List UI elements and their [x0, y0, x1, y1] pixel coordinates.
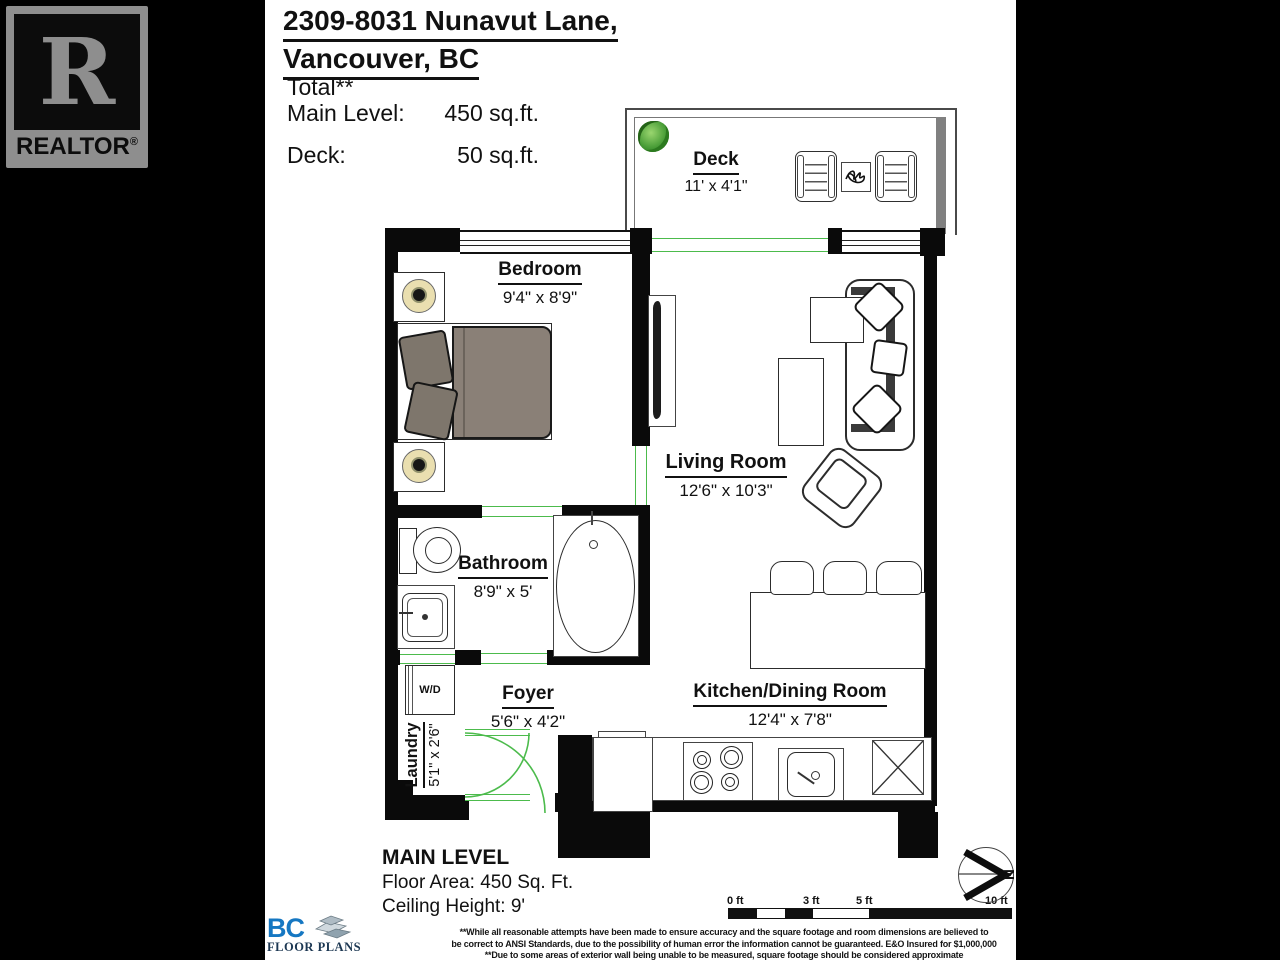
sink-drain: [422, 614, 428, 620]
wall-segment: [828, 228, 842, 254]
wall-segment: [924, 250, 937, 806]
room-name: Laundry: [403, 722, 425, 787]
room-label-living-room: Living Room 12'6" x 10'3": [646, 450, 806, 501]
coffee-table: [778, 358, 824, 446]
tv-screen: [653, 301, 661, 419]
bed-blanket: [452, 326, 552, 439]
sliding-door: [652, 238, 828, 252]
room-name: Kitchen/Dining Room: [693, 680, 886, 707]
room-name: Deck: [693, 148, 738, 175]
level-summary: MAIN LEVEL Floor Area: 450 Sq. Ft. Ceili…: [382, 845, 573, 919]
refrigerator: [593, 737, 653, 812]
throw-pillow: [870, 339, 908, 377]
area-row-value: 50 sq.ft.: [457, 142, 539, 169]
realtor-logo: R REALTOR®: [6, 6, 148, 168]
scale-bar: [728, 908, 1012, 919]
room-name: Foyer: [502, 682, 554, 709]
north-arrow-icon: N: [958, 847, 1016, 907]
faucet: [399, 612, 413, 614]
room-name: Living Room: [665, 450, 786, 478]
level-title: MAIN LEVEL: [382, 845, 573, 871]
floor-area: Floor Area: 450 Sq. Ft.: [382, 871, 573, 895]
armchair: [797, 443, 887, 533]
entry-door-swing: [460, 723, 585, 818]
scale-tick: 3 ft: [803, 895, 820, 907]
floorplan-canvas: 2309-8031 Nunavut Lane, Vancouver, BC To…: [265, 0, 1016, 960]
disclaimer: **While all reasonable attempts have bee…: [433, 927, 1015, 960]
table-lamp: [402, 279, 436, 313]
registered-mark: ®: [130, 136, 138, 148]
wall-segment: [455, 650, 481, 665]
bc-logo-house-icon: [306, 913, 352, 941]
toilet-bowl-inner: [425, 537, 452, 564]
property-address: 2309-8031 Nunavut Lane, Vancouver, BC: [283, 4, 618, 80]
room-dims: 12'6" x 10'3": [646, 480, 806, 501]
bar-stool: [823, 561, 867, 595]
refrigerator-door: [598, 731, 646, 738]
table-plant-scribble: [842, 163, 870, 191]
area-row-label: Main Level:: [287, 100, 405, 127]
north-label: N: [1000, 869, 1016, 880]
table-lamp: [402, 449, 436, 483]
disclaimer-line: **While all reasonable attempts have bee…: [433, 927, 1015, 939]
deck-chair: [875, 151, 917, 202]
deck-chair: [795, 151, 837, 202]
tub-faucet: [591, 511, 593, 525]
disclaimer-line: **Due to some areas of exterior wall bei…: [433, 950, 1015, 960]
stove-burner: [720, 746, 743, 769]
bc-floor-plans-logo: BC FLOOR PLANS: [267, 913, 379, 955]
kitchen-island: [750, 592, 926, 669]
bar-stool: [770, 561, 814, 595]
bc-logo-wordmark: FLOOR PLANS: [267, 940, 379, 955]
realtor-wordmark: REALTOR®: [6, 132, 148, 168]
scale-tick: 5 ft: [856, 895, 873, 907]
realtor-logo-box: R: [14, 14, 140, 130]
appliance-x-box: [872, 740, 924, 795]
total-label: Total**: [287, 74, 353, 101]
bathroom-door-top: [482, 506, 562, 517]
disclaimer-line: be correct to ANSI Standards, due to the…: [433, 939, 1015, 951]
area-row-deck: Deck: 50 sq.ft.: [287, 142, 539, 169]
room-label-deck: Deck 11' x 4'1": [636, 148, 796, 197]
stove-burner: [693, 751, 711, 769]
bathroom-door-bottom: [481, 653, 547, 664]
room-name: Bedroom: [498, 258, 581, 285]
sink-drain: [811, 771, 820, 780]
room-name: Bathroom: [458, 552, 548, 579]
scale-tick: 0 ft: [727, 895, 744, 907]
room-label-bedroom: Bedroom 9'4" x 8'9": [460, 258, 620, 308]
deck-side-table: [841, 162, 871, 192]
wall-segment: [898, 812, 938, 858]
pillow: [398, 329, 455, 391]
floorplan-page: R REALTOR® 2309-8031 Nunavut Lane, Vanco…: [0, 0, 1280, 960]
bathroom-sink: [402, 593, 448, 642]
area-row-main-level: Main Level: 450 sq.ft.: [287, 100, 539, 127]
realtor-r-glyph: R: [39, 26, 115, 118]
area-row-value: 450 sq.ft.: [444, 100, 539, 127]
room-dims: 11' x 4'1": [636, 177, 796, 197]
stove: [683, 742, 753, 801]
deck-side-wall: [936, 117, 946, 233]
wall-segment: [385, 650, 400, 665]
room-dims: 9'4" x 8'9": [460, 287, 620, 308]
ceiling-height: Ceiling Height: 9': [382, 895, 573, 919]
room-dims: 12'4" x 7'8": [690, 709, 890, 730]
room-label-kitchen: Kitchen/Dining Room 12'4" x 7'8": [690, 680, 890, 730]
wall-segment: [385, 505, 482, 518]
room-dims: 5'1" x 2'6": [427, 723, 443, 786]
address-line1: 2309-8031 Nunavut Lane,: [283, 4, 618, 42]
stove-burner: [690, 771, 713, 794]
bar-stool: [876, 561, 922, 595]
laundry-door: [400, 654, 455, 664]
tub-drain: [589, 540, 598, 549]
window: [842, 230, 920, 254]
stove-burner: [721, 773, 739, 791]
bc-logo-abbrev: BC: [267, 915, 304, 941]
window: [460, 230, 630, 254]
area-row-label: Deck:: [287, 142, 346, 169]
